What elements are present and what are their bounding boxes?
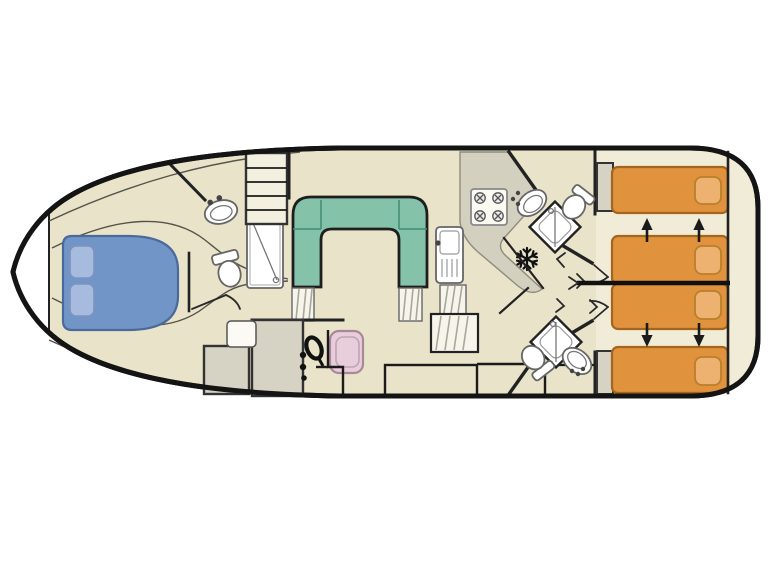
steps-icon [292, 288, 314, 321]
pillow [70, 284, 94, 316]
ladder-icon [246, 153, 287, 224]
deck-plan-canvas [0, 0, 768, 576]
shower-icon [247, 215, 283, 288]
cabinet [252, 320, 303, 396]
stove-icon [471, 189, 507, 225]
steps-icon [399, 288, 422, 321]
deck-plan [0, 0, 768, 576]
berth-pillow [695, 357, 721, 385]
berth-pillow [695, 246, 721, 274]
pillow [70, 246, 94, 278]
wardrobe [597, 351, 613, 394]
bow-cabin [63, 236, 178, 330]
berth-pillow [695, 177, 721, 204]
galley-sink-icon [435, 227, 463, 283]
wardrobe [597, 163, 613, 211]
side-table [227, 321, 256, 347]
berth-pillow [695, 291, 721, 319]
